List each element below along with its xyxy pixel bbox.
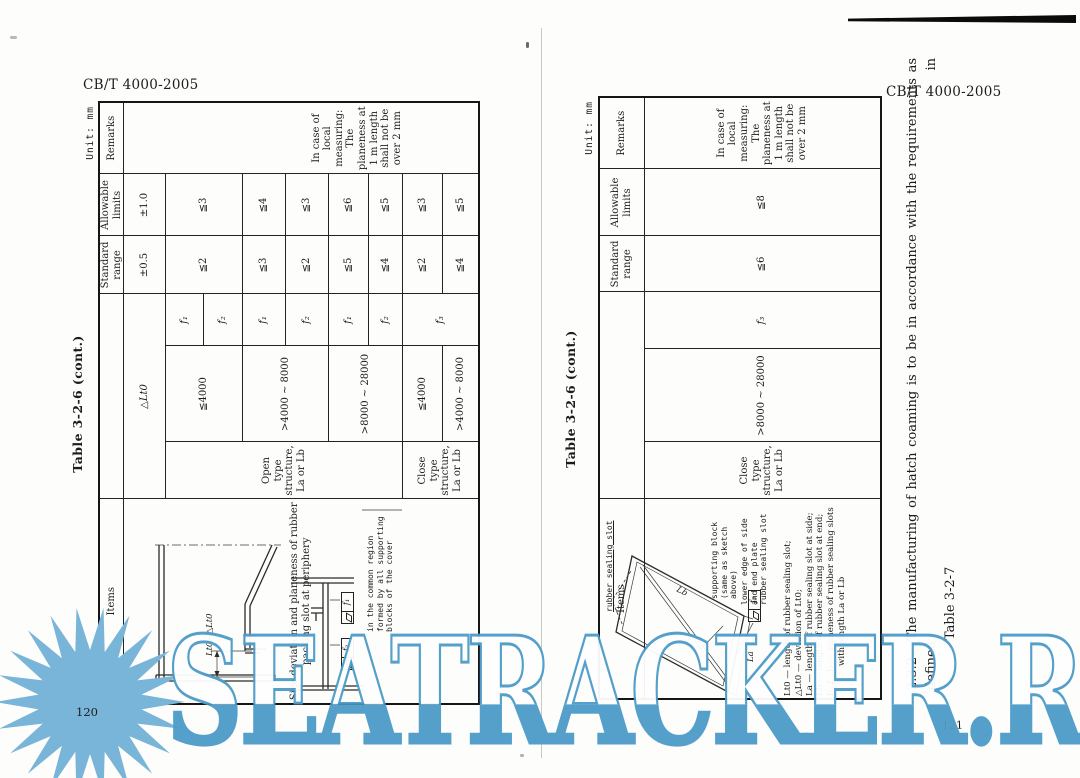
rubber-sealing-slot-label: rubber sealing slot (605, 512, 617, 612)
standard-value: ≦2 (286, 236, 329, 294)
standard-value: ≦4 (443, 236, 479, 294)
standard-value: ≦4 (369, 236, 403, 294)
col-standard-left: Standard range (99, 236, 124, 294)
delta-lt0-cell: △Lt0 (124, 294, 166, 499)
sun-logo (0, 602, 192, 778)
f-cell: f₁ (243, 294, 286, 346)
unit-label-right: Unit: mm (584, 101, 595, 155)
legend-line: △Lt0 — deviation of Lt0; (794, 502, 805, 697)
allowable-value: ≦4 (243, 174, 286, 236)
diagram-note: in the common region formed by all suppo… (366, 508, 400, 632)
f-cell-right: f₃ (644, 292, 881, 349)
allowable-value: ≦6 (329, 174, 369, 236)
col-allowable-right: Allowable limits (599, 169, 644, 236)
dim-label-lb: Lb (674, 584, 689, 599)
flatness-value: f₃ (749, 591, 760, 609)
range-cell: ≦4000 (403, 346, 443, 442)
range-cell: >4000 ~ 8000 (243, 346, 329, 442)
remarks-cell-right: In case of local measuring: The planenes… (644, 97, 881, 169)
scan-artifact-line (848, 15, 1076, 23)
allowable-value: ≦3 (166, 174, 243, 236)
range-cell-right: >8000 ~ 28000 (644, 349, 881, 442)
allowable-value: ≦3 (286, 174, 329, 236)
close-structure-cell-right: Close type structure, La or Lb (644, 442, 881, 499)
clause-2-3-2: 2.3.2 The manufacturing of hatch coaming… (903, 58, 941, 690)
legend-line: Lt0 — length of rubber sealing slot; (783, 502, 794, 697)
diagram-legend: Lt0 — length of rubber sealing slot; △Lt… (783, 502, 847, 697)
flatness-frame-f1: f₁ (341, 592, 354, 624)
standard-value: ≦5 (329, 236, 369, 294)
f-cell: f₁ (329, 294, 369, 346)
col-spacer-right (599, 292, 644, 499)
col-remarks-left: Remarks (99, 102, 124, 174)
legend-line: La — length of rubber sealing slot at si… (805, 502, 816, 697)
unit-label-left: Unit: mm (85, 106, 96, 160)
delta-allowable: ±1.0 (124, 174, 166, 236)
scan-speck (520, 754, 524, 757)
flatness-icon (749, 609, 760, 621)
flatness-icon (342, 657, 353, 669)
f-cell: f₂ (204, 294, 243, 346)
col-remarks-right: Remarks (599, 97, 644, 169)
allowable-value: ≦5 (369, 174, 403, 236)
scanned-document: { "watermark": {"text": "SEATRACKER.RU"}… (0, 0, 1080, 778)
close-structure-cell: Close type structure, La or Lb (403, 442, 479, 499)
col-standard-right: Standard range (599, 236, 644, 292)
flatness-value: f₂ (342, 639, 353, 657)
flatness-value: f₁ (342, 593, 353, 611)
doc-code-left: CB/T 4000-2005 (83, 77, 199, 93)
col-spacer-left (99, 294, 124, 499)
range-cell: ≦4000 (166, 346, 243, 442)
allowable-value-right: ≦8 (644, 169, 881, 236)
page-number-left: 120 (76, 705, 98, 719)
flatness-frame-f2: f₂ (341, 638, 354, 670)
flatness-icon (342, 611, 353, 623)
flatness-frame-f3: f₃ (748, 590, 761, 622)
dim-label-la: La (746, 651, 756, 663)
clause-text: The manufacturing of hatch coaming is to… (905, 58, 939, 690)
page-fold-line (541, 28, 542, 758)
standard-value: ≦2 (403, 236, 443, 294)
f-cell: f₃ (403, 294, 479, 346)
page-number-right: 121 (942, 719, 963, 733)
dim-label-lt0: Lt0+△Lt0 (205, 613, 215, 657)
range-cell: >4000 ~ 8000 (443, 346, 479, 442)
f-cell: f₂ (286, 294, 329, 346)
legend-line: Lb — length of rubber sealing slot at en… (815, 502, 826, 697)
table-title-right: Table 3-2-6 (cont.) (563, 98, 578, 700)
range-cell: >8000 ~ 28000 (329, 346, 403, 442)
allowable-value: ≦5 (443, 174, 479, 236)
scan-speck (526, 42, 529, 48)
f-cell: f₂ (369, 294, 403, 346)
periphery-cross-section-diagram: Lt0+△Lt0 (148, 498, 488, 713)
standard-value: ≦2 (166, 236, 243, 294)
col-allowable-left: Allowable limits (99, 174, 124, 236)
open-structure-cell: Open type structure, La or Lb (166, 442, 403, 499)
legend-line: f₁, f₂, f₃ — planeness of rubber sealing… (826, 502, 847, 697)
clause-line-2: Table 3-2-7 (941, 58, 960, 690)
supporting-block-label: supporting block (same as sketch above) (710, 509, 738, 599)
scan-speck (10, 36, 17, 39)
standard-value: ≦3 (243, 236, 286, 294)
f-cell: f₁ (166, 294, 204, 346)
allowable-value: ≦3 (403, 174, 443, 236)
clause-line-1: 2.3.2 The manufacturing of hatch coaming… (903, 58, 941, 690)
clause-number: 2.3.2 (905, 647, 920, 690)
standard-value-right: ≦6 (644, 236, 881, 292)
remarks-cell-left: In case of local measuring: The planenes… (124, 102, 479, 174)
delta-standard: ±0.5 (124, 236, 166, 294)
